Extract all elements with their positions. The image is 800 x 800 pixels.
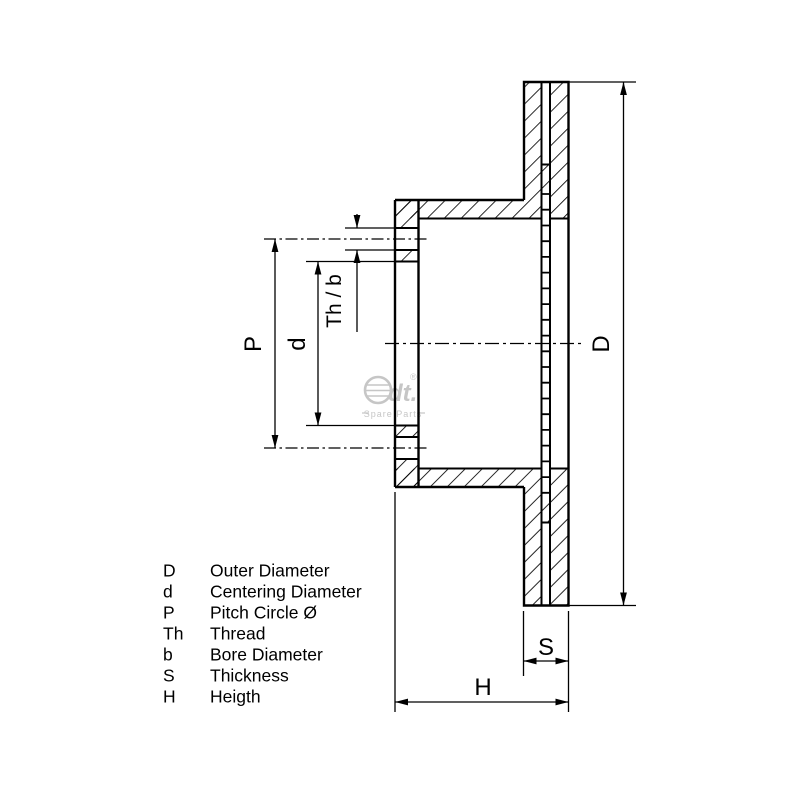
legend-symbol: D: [163, 561, 176, 581]
dimension-lines: [275, 82, 624, 702]
legend-description: Pitch Circle Ø: [210, 603, 317, 623]
arrow-d-up: [315, 262, 322, 275]
legend-symbol: Th: [163, 624, 183, 644]
legend-description: Thickness: [210, 666, 289, 686]
hat-face-bottom-hatch: [395, 459, 419, 487]
legend-symbol: S: [163, 666, 175, 686]
centerlines: [264, 239, 583, 448]
legend-symbol: b: [163, 645, 173, 665]
dt-logo-text: dt.: [388, 380, 417, 407]
vent-web-bottom-hatch: [542, 493, 550, 523]
legend: D Outer Diameter d Centering Diameter P …: [163, 561, 362, 707]
arrow-d-down: [315, 413, 322, 426]
hat-face-upper-inner-hatch: [395, 250, 419, 262]
arrow-H-left: [395, 699, 408, 706]
legend-symbol: P: [163, 603, 175, 623]
dimension-label-D: D: [588, 335, 615, 352]
dimension-label-P: P: [240, 336, 267, 352]
left-friction-plate-bottom-hatch: [524, 469, 543, 606]
arrow-H-right: [556, 699, 569, 706]
legend-description: Outer Diameter: [210, 561, 330, 581]
dt-logo-subtext: Spare Parts: [364, 409, 423, 419]
arrow-P-up: [272, 239, 279, 252]
right-friction-plate-bottom-hatch: [550, 469, 569, 606]
arrow-S-left: [524, 658, 537, 665]
legend-symbol: H: [163, 687, 176, 707]
registered-trademark-icon: ®: [410, 372, 417, 382]
dimension-label-H: H: [474, 674, 491, 701]
dimension-arrowheads: [272, 82, 627, 705]
dt-logo-watermark: dt. ® Spare Parts: [362, 372, 425, 419]
arrow-S-right: [556, 658, 569, 665]
extension-lines: [306, 82, 636, 712]
right-friction-plate-top-hatch: [550, 82, 569, 219]
arrow-thb-up: [354, 250, 361, 263]
dimension-label-thb: Th / b: [323, 274, 346, 328]
legend-description: Bore Diameter: [210, 645, 323, 665]
arrow-P-down: [272, 435, 279, 448]
legend-description: Centering Diameter: [210, 582, 362, 602]
dimension-label-d: d: [284, 337, 311, 350]
legend-description: Thread: [210, 624, 265, 644]
dimension-label-S: S: [538, 634, 554, 661]
page: dt. ® Spare Parts: [0, 0, 800, 800]
arrow-D-up: [620, 82, 627, 95]
arrow-D-down: [620, 593, 627, 606]
vent-web-top-hatch: [542, 165, 550, 195]
legend-symbol: d: [163, 582, 173, 602]
brake-disc-cross-section-drawing: dt. ® Spare Parts: [0, 0, 800, 800]
legend-description: Heigth: [210, 687, 261, 707]
left-friction-plate-top-hatch: [524, 82, 543, 219]
hat-face-top-hatch: [395, 200, 419, 228]
dt-logo-globe-stripes: [366, 385, 391, 396]
arrow-thb-down: [354, 215, 361, 228]
hat-face-lower-inner-hatch: [395, 426, 419, 438]
